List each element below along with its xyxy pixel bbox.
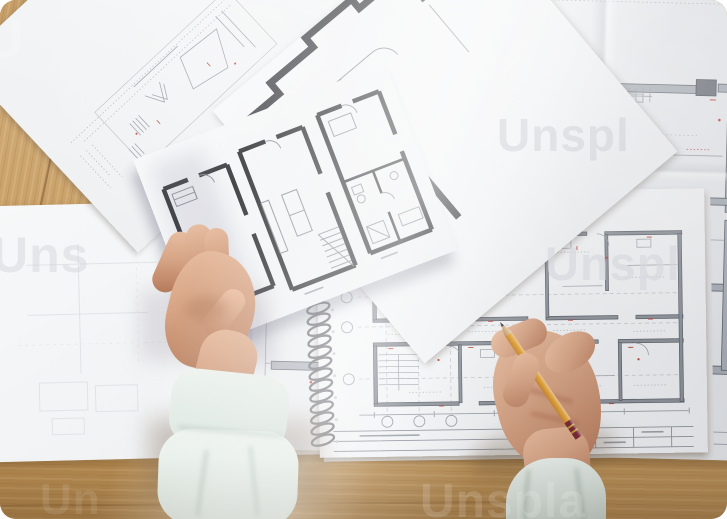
watermark-fragment: Un (40, 478, 101, 519)
watermark-fragment: U (0, 12, 24, 66)
left-sleeve (156, 428, 299, 519)
watermark-fragment: Uns (0, 230, 89, 280)
photo-architect-blueprints: Overhead photo of an architect's hands a… (0, 0, 727, 519)
watermark-fragment: Unspl (545, 240, 681, 287)
watermark-fragment: Unspla (420, 478, 586, 519)
left-hand-knuckle-shading (186, 296, 226, 322)
watermark-fragment: Unspl (497, 112, 630, 158)
